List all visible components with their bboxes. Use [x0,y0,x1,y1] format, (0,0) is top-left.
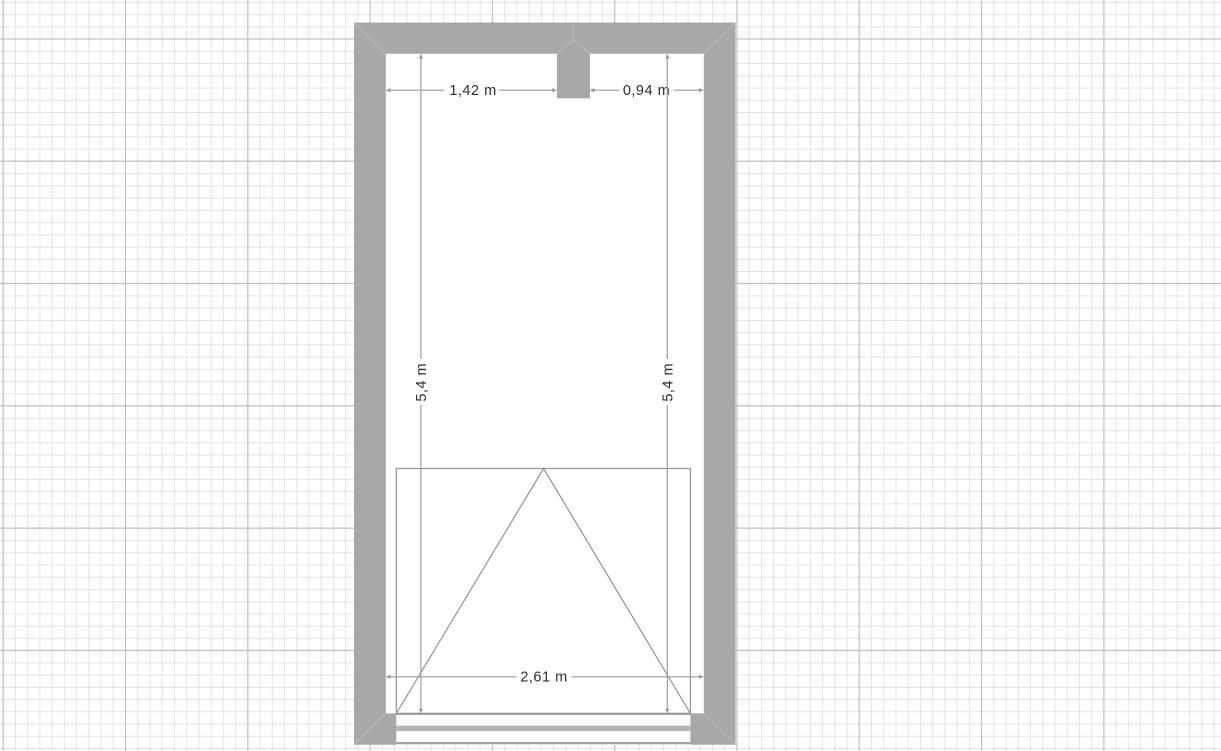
svg-text:5,4 m: 5,4 m [661,363,677,402]
svg-text:2,61 m: 2,61 m [520,670,567,686]
svg-text:1,42 m: 1,42 m [449,83,496,99]
svg-text:5,4 m: 5,4 m [414,363,430,402]
svg-text:0,94 m: 0,94 m [623,83,670,99]
